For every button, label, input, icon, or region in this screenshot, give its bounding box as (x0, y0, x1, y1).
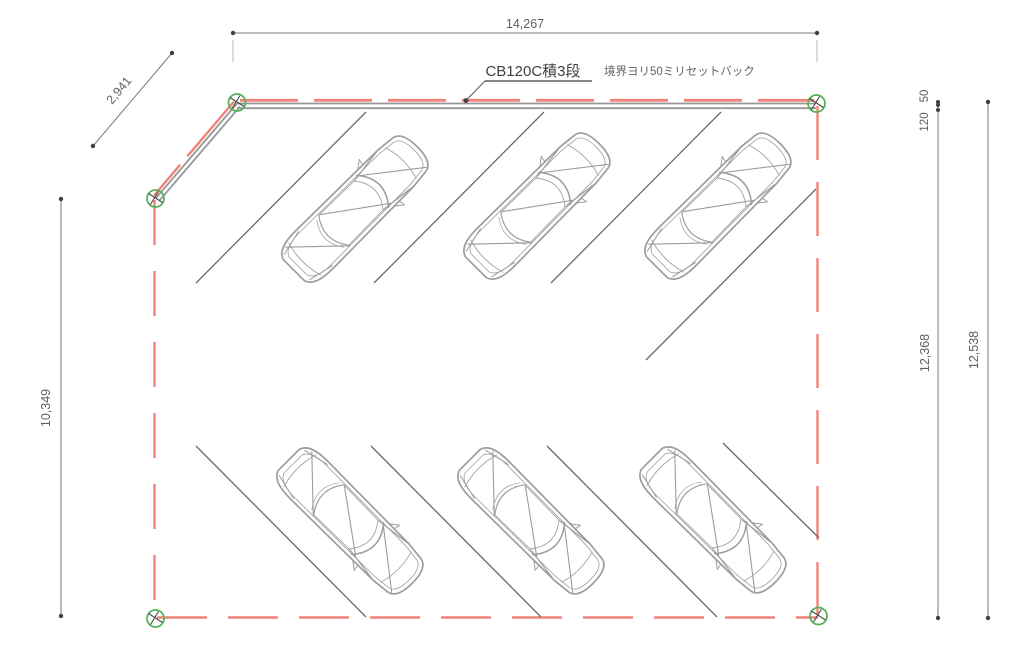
car-top-2 (453, 121, 622, 290)
car-bottom-1 (266, 437, 435, 606)
dim-right-block-label: 120 (919, 112, 931, 131)
car-top-3 (634, 121, 803, 290)
car-bottom-3 (629, 436, 798, 605)
dim-diagonal: 2,941 (91, 51, 174, 148)
site-plan-canvas: 14,267 2,941 10,349 50 120 12,368 12,538 (0, 0, 1024, 658)
dim-left-height-label: 10,349 (39, 389, 53, 427)
dim-right-total-label: 12,538 (967, 331, 981, 369)
car-top-1 (271, 124, 440, 293)
dim-diagonal-label: 2,941 (104, 74, 135, 107)
dim-left-height: 10,349 (39, 197, 63, 618)
stall-line-bottom-1 (196, 446, 366, 617)
dim-top-width: 14,267 (231, 17, 819, 62)
corner-markers (147, 94, 827, 627)
parking-stall-lines (196, 112, 819, 617)
setback-note-label: 境界ヨリ50ミリセットバック (604, 64, 755, 78)
cb-block-wall-top (237, 104, 816, 109)
leader-line (466, 81, 485, 101)
stall-line-bottom-4 (723, 443, 819, 538)
stall-line-top-1 (196, 112, 366, 283)
dim-right-chain: 50 120 12,368 (918, 90, 940, 621)
car-bottom-2 (447, 437, 616, 606)
dim-right-inner-label: 12,368 (918, 334, 932, 372)
boundary-diagonal (154, 102, 234, 196)
block-note-label: CB120C積3段 (485, 63, 580, 80)
dim-top-width-label: 14,267 (506, 17, 544, 31)
cb-block-wall-diagonal (156, 104, 240, 202)
dim-right-setback-label: 50 (919, 90, 931, 103)
parked-cars (266, 121, 803, 606)
dim-right-total: 12,538 (967, 100, 990, 620)
block-note: CB120C積3段 (464, 63, 592, 103)
parking-site-plan: 14,267 2,941 10,349 50 120 12,368 12,538 (0, 0, 1024, 658)
